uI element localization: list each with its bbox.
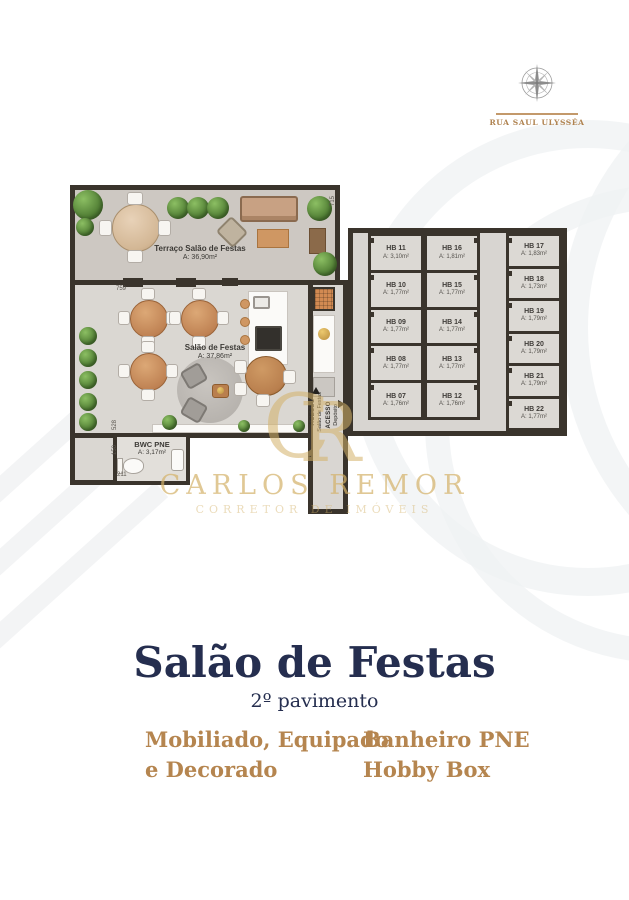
hobby-box-area: A: 1,77m² xyxy=(439,290,465,298)
hobby-box-area: A: 1,77m² xyxy=(521,414,547,422)
hobby-box-area: A: 3,10m² xyxy=(383,254,409,262)
chair xyxy=(169,311,181,325)
hobby-box-area: A: 1,76m² xyxy=(383,401,409,409)
coffee-table xyxy=(257,229,289,248)
hobby-box: HB 12 A: 1,76m² xyxy=(427,383,477,417)
hobby-box: HB 20 A: 1,79m² xyxy=(509,334,559,364)
hedge-plant xyxy=(79,413,97,431)
planter-hedge xyxy=(187,197,209,219)
hobby-box-label: HB 16 xyxy=(442,244,462,253)
hedge-plant xyxy=(79,393,97,411)
chair xyxy=(192,288,206,300)
plant xyxy=(238,420,250,432)
hedge-plant xyxy=(79,371,97,389)
chair xyxy=(127,192,143,205)
chair xyxy=(158,220,171,236)
hobby-box: HB 15 A: 1,77m² xyxy=(427,273,477,307)
planter-hedge xyxy=(207,197,229,219)
hobby-box-area: A: 1,77m² xyxy=(383,327,409,335)
hobby-box: HB 17 A: 1,83m² xyxy=(509,236,559,266)
hobby-box-label: HB 17 xyxy=(524,242,544,251)
hobby-box-label: HB 12 xyxy=(442,392,462,401)
hobby-box-label: HB 14 xyxy=(442,318,462,327)
terrace-label: Terraço Salão de Festas A: 36,90m² xyxy=(145,244,255,263)
side-table xyxy=(309,228,326,254)
chair xyxy=(234,382,247,396)
dimension-label: 150 xyxy=(112,445,118,455)
feature-line: Mobiliado, Equipado xyxy=(145,725,389,755)
hobby-box: HB 21 A: 1,79m² xyxy=(509,366,559,396)
hobby-box-label: HB 19 xyxy=(524,307,544,316)
decor-item xyxy=(217,387,224,394)
salon-label: Salão de Festas A: 37,86m² xyxy=(170,343,260,362)
hobby-box-column-1: HB 11 A: 3,10m² HB 10 A: 1,77m² HB 09 A:… xyxy=(368,233,424,420)
hobby-box-area: A: 1,77m² xyxy=(439,364,465,372)
plant xyxy=(313,252,337,276)
hobby-box-area: A: 1,77m² xyxy=(439,327,465,335)
hobby-box-label: HB 18 xyxy=(524,275,544,284)
hobby-box: HB 07 A: 1,76m² xyxy=(371,383,421,417)
page: RUA SAUL ULYSSÉA Terraço Salão de Festas… xyxy=(0,0,629,900)
hobby-box-label: HB 21 xyxy=(524,372,544,381)
bwc-area: A: 3,17m² xyxy=(120,449,184,457)
watermark-tagline: CORRETOR DE IMÓVEIS xyxy=(0,503,629,516)
hobby-box-area: A: 1,81m² xyxy=(439,254,465,262)
hobby-box: HB 22 A: 1,77m² xyxy=(509,399,559,429)
hobby-box-area: A: 1,73m² xyxy=(521,284,547,292)
hobby-box-label: HB 09 xyxy=(386,318,406,327)
hobby-box: HB 18 A: 1,73m² xyxy=(509,269,559,299)
compass-block: RUA SAUL ULYSSÉA xyxy=(480,62,594,127)
chair xyxy=(234,360,247,374)
round-sink xyxy=(318,328,330,340)
planter-hedge xyxy=(167,197,189,219)
hedge-plant xyxy=(79,327,97,345)
hobby-box-label: HB 07 xyxy=(386,392,406,401)
salon-name: Salão de Festas xyxy=(170,343,260,353)
hobby-box: HB 10 A: 1,77m² xyxy=(371,273,421,307)
salon-area: A: 37,86m² xyxy=(170,353,260,362)
feature-line: Hobby Box xyxy=(363,755,530,785)
hobby-box-label: HB 20 xyxy=(524,340,544,349)
hobby-box: HB 08 A: 1,77m² xyxy=(371,346,421,380)
bwc-name: BWC PNE xyxy=(120,440,184,449)
sink xyxy=(253,296,270,309)
chair xyxy=(127,250,143,263)
hobby-box-column-2: HB 16 A: 1,81m² HB 15 A: 1,77m² HB 14 A:… xyxy=(424,233,480,420)
hobby-box-label: HB 10 xyxy=(386,281,406,290)
page-title: Salão de Festas xyxy=(0,638,629,687)
feature-line: e Decorado xyxy=(145,755,389,785)
hobby-box-area: A: 1,79m² xyxy=(521,381,547,389)
stool xyxy=(240,299,250,309)
chair xyxy=(141,341,155,353)
door-sill xyxy=(176,278,196,287)
watermark-monogram: C R xyxy=(255,382,375,482)
page-subtitle: 2º pavimento xyxy=(0,690,629,712)
dimension-label: 528 xyxy=(112,420,118,430)
dining-table xyxy=(181,300,219,338)
monogram-r: R xyxy=(299,392,361,476)
compass-icon xyxy=(516,62,558,104)
hobby-box-label: HB 08 xyxy=(386,355,406,364)
chair xyxy=(166,364,178,378)
shaft xyxy=(313,287,335,311)
hobby-box-area: A: 1,77m² xyxy=(383,290,409,298)
bwc-label: BWC PNE A: 3,17m² xyxy=(120,440,184,458)
hedge-plant xyxy=(79,349,97,367)
hobby-box-column-3: HB 17 A: 1,83m² HB 18 A: 1,73m² HB 19 A:… xyxy=(506,233,562,431)
chair xyxy=(118,311,130,325)
chair xyxy=(118,364,130,378)
hobby-box-area: A: 1,79m² xyxy=(521,349,547,357)
hobby-box: HB 13 A: 1,77m² xyxy=(427,346,477,380)
feature-amenities: Banheiro PNE Hobby Box xyxy=(363,725,530,785)
dimension-label: 759 xyxy=(116,286,126,292)
feature-line: Banheiro PNE xyxy=(363,725,530,755)
plant xyxy=(307,196,332,221)
hobby-box: HB 16 A: 1,81m² xyxy=(427,236,477,270)
hobby-box: HB 11 A: 3,10m² xyxy=(371,236,421,270)
terrace-area: A: 36,90m² xyxy=(145,254,255,263)
terrace-name: Terraço Salão de Festas xyxy=(145,244,255,254)
hobby-box: HB 09 A: 1,77m² xyxy=(371,310,421,344)
dining-table xyxy=(130,300,168,338)
hobby-box-label: HB 22 xyxy=(524,405,544,414)
stool xyxy=(240,317,250,327)
hobby-box: HB 19 A: 1,79m² xyxy=(509,301,559,331)
hobby-box-label: HB 13 xyxy=(442,355,462,364)
hobby-box-area: A: 1,83m² xyxy=(521,251,547,259)
chair xyxy=(99,220,112,236)
hobby-box: HB 14 A: 1,77m² xyxy=(427,310,477,344)
door-sill xyxy=(222,278,238,286)
hobby-box-label: HB 11 xyxy=(386,244,405,253)
feature-furnished: Mobiliado, Equipado e Decorado xyxy=(145,725,389,785)
divider-line xyxy=(496,113,578,115)
chair xyxy=(217,311,229,325)
hobby-box-label: HB 15 xyxy=(442,281,462,290)
hobby-box-area: A: 1,77m² xyxy=(383,364,409,372)
counter xyxy=(313,315,335,373)
plant xyxy=(73,190,103,220)
plant xyxy=(162,415,177,430)
dimension-label: 715 xyxy=(330,196,336,206)
hobby-box-area: A: 1,76m² xyxy=(439,401,465,409)
plant xyxy=(76,218,94,236)
street-name: RUA SAUL ULYSSÉA xyxy=(480,118,594,127)
sofa xyxy=(240,196,298,222)
chair xyxy=(141,288,155,300)
chair xyxy=(141,389,155,401)
watermark-name: CARLOS REMOR xyxy=(0,470,629,501)
hobby-box-area: A: 1,79m² xyxy=(521,316,547,324)
dining-table xyxy=(130,353,168,391)
